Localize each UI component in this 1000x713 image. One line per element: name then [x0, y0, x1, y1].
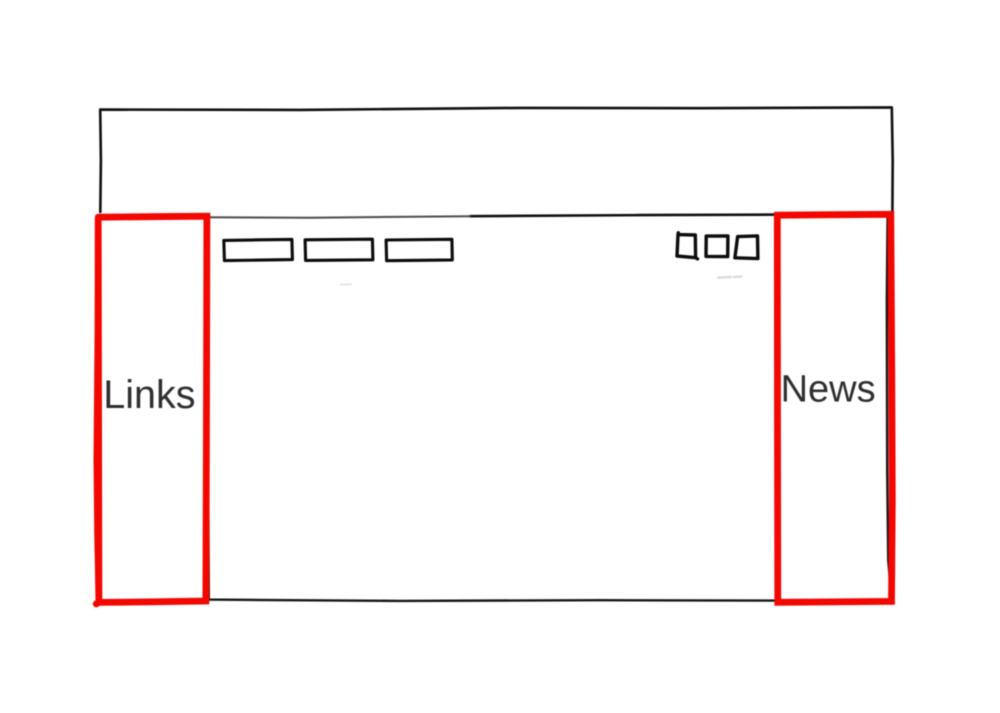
svg-text:Links: Links: [103, 373, 195, 417]
svg-text:News: News: [781, 369, 876, 411]
